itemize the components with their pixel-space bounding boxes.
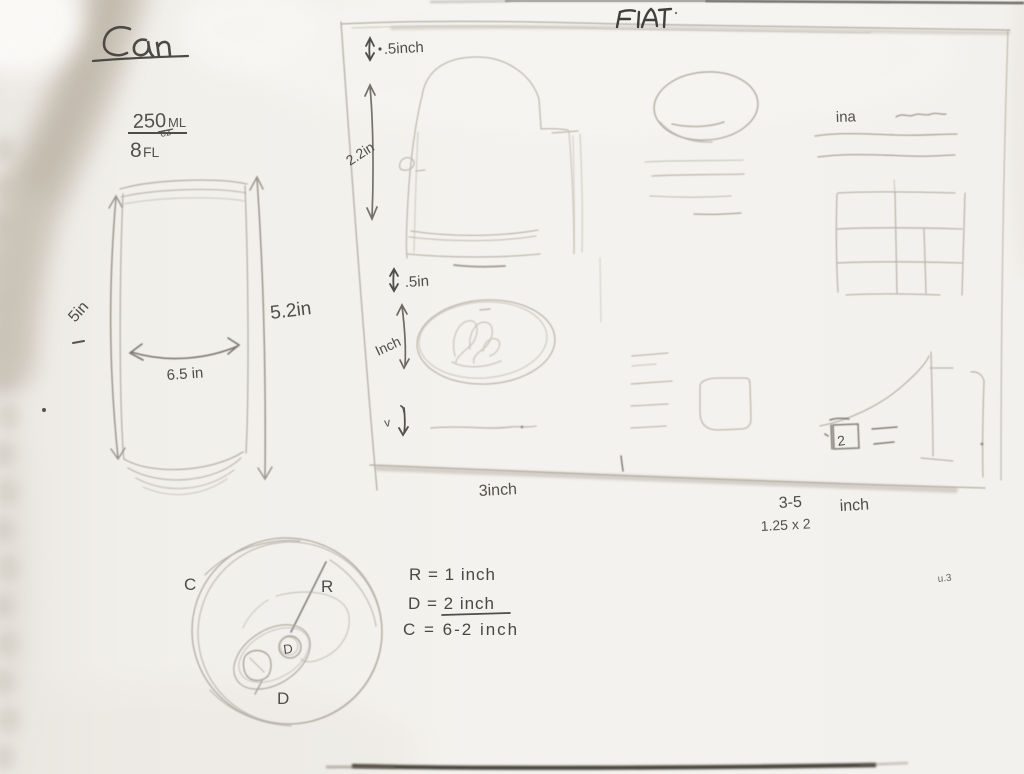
svg-text:ML: ML (168, 115, 186, 130)
svg-text:R: R (321, 577, 333, 596)
svg-text:u.3: u.3 (937, 573, 952, 585)
svg-text:C: C (184, 575, 196, 594)
svg-text:oz: oz (159, 127, 172, 140)
svg-text:8: 8 (130, 139, 142, 162)
svg-text:1.25 x 2: 1.25 x 2 (760, 515, 811, 534)
svg-text:inch: inch (839, 496, 869, 515)
svg-text:R = 1 inch: R = 1 inch (409, 565, 496, 584)
svg-text:C = 6-2 inch: C = 6-2 inch (403, 620, 519, 639)
svg-text:.5in: .5in (404, 273, 429, 291)
svg-text:ina: ina (836, 108, 857, 126)
svg-text:FL: FL (143, 144, 160, 160)
svg-text:3inch: 3inch (478, 481, 517, 500)
svg-text:D = 2 inch: D = 2 inch (408, 594, 495, 613)
svg-text:3-5: 3-5 (778, 494, 802, 512)
svg-text:.5inch: .5inch (383, 39, 424, 58)
svg-text:6.5 in: 6.5 in (166, 364, 204, 384)
svg-text:D: D (277, 689, 289, 708)
